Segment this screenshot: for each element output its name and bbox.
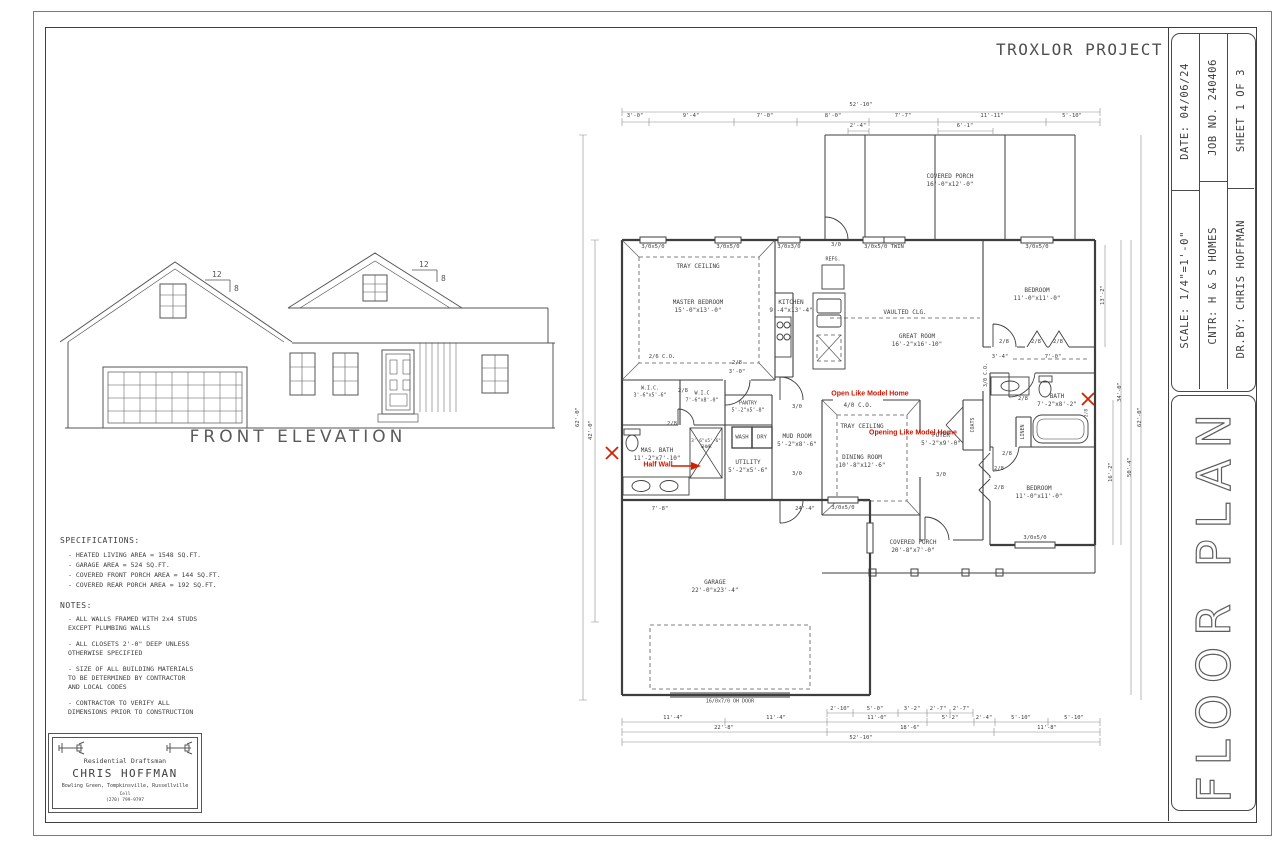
notes-heading: NOTES: [60,601,340,610]
dim-label: 2'-7" [953,706,970,712]
door-label: 2/8 [994,485,1004,491]
dim-label: 2'-4" [850,123,867,129]
door-label: 3/0 [936,472,946,478]
room-label-covered-porch-front: COVERED PORCH20'-8"x7'-0" [890,539,937,555]
tray-corner-lines [622,240,920,515]
svg-text:12: 12 [212,270,222,279]
drawing-title: FLOOR PLAN [1187,403,1241,803]
room-label-covered-porch-rear: COVERED PORCH16'-0"x12'-0" [927,173,974,189]
markup-opening-like-model-home: Opening Like Model Home [869,430,957,437]
door-label: 3/0 [831,242,841,248]
room-label-mud-room: MUD ROOM5'-2"x8'-6" [777,433,817,449]
room-label-bedroom-lower: BEDROOM11'-0"x11'-0" [1016,485,1063,501]
dim-label: 62'-0" [1137,407,1143,427]
door-label: 2/8 [994,466,1004,472]
stamp-phone: (270) 799-9797 [106,798,144,804]
room-label-wic-small: W.I.C.3'-6"x5'-6" [633,385,666,399]
window-label: 3/0x3/0 [777,244,800,250]
door-label: 2/8 [1031,339,1041,345]
dim-label: 7'-0" [1045,354,1062,360]
dim-label: 8'-0" [825,113,842,119]
room-label-bath: BATH7'-2"x8'-2" [1037,393,1077,409]
ceiling-label-master: TRAY CEILING [676,263,719,271]
dim-label: 5'-10" [1011,715,1031,721]
door-label: 2/8 [999,339,1009,345]
room-label-bedroom-upper: BEDROOM11'-0"x11'-0" [1014,287,1061,303]
dim-label: 16'-2" [1108,462,1114,482]
door-label: 2/8 [1002,451,1012,457]
dim-label: 62'-0" [575,407,581,427]
dim-label: 11'-8" [1037,725,1057,731]
window-label: 3/0x5/0 TWIN [864,244,904,250]
drafting-machine-icon [165,740,193,756]
spec-item: - COVERED FRONT PORCH AREA = 144 SQ.FT. [60,570,340,580]
front-elevation-label: FRONT ELEVATION [190,427,407,447]
window-label: 3/0x5/0 [1023,535,1046,541]
stamp-cities: Bowling Green, Tompkinsville, Russellvil… [62,783,188,789]
door-label: 3/0 C.O. [983,363,989,387]
half-wall-arrow [671,462,701,470]
door-label: 2/6 C.O. [649,354,676,360]
dim-label: 11'-4" [766,715,786,721]
dim-label: 22'-8" [714,725,734,731]
dim-label: 3'-4" [992,354,1009,360]
dim-label: 2'-4" [976,715,993,721]
specifications-block: SPECIFICATIONS: - HEATED LIVING AREA = 1… [60,536,340,590]
appliance-label-wash: WASH [735,434,748,441]
door-label: 2/8 [1085,409,1090,417]
room-label-great-room: GREAT ROOM16'-2"x16'-10" [892,333,943,349]
floor-plan: COVERED PORCH16'-0"x12'-0" TRAY CEILING … [575,95,1175,765]
dim-label: 5'-0" [867,706,884,712]
door-label: 3/0 [792,404,802,410]
dim-label: 13'-2" [1100,285,1106,305]
stamp-name: CHRIS HOFFMAN [72,767,178,780]
markup-half-wall: Half Wall [643,462,672,469]
door-label: 2/8 [667,421,677,427]
note-item: - CONTRACTOR TO VERIFY ALL DIMENSIONS PR… [60,699,340,717]
stamp-title: Residential Draftsman [84,757,166,765]
spec-item: - HEATED LIVING AREA = 1548 SQ.FT. [60,550,340,560]
dim-label: 9'-4" [683,113,700,119]
project-title: TROXLOR PROJECT [980,40,1163,59]
date-field: DATE: 04/06/24 [1171,33,1199,190]
svg-text:12: 12 [419,260,429,269]
door-label: 3/0 [792,471,802,477]
room-label-utility: UTILITY5'-2"x5'-6" [728,459,768,475]
note-item: - ALL CLOSETS 2'-0" DEEP UNLESS OTHERWIS… [60,640,340,658]
draftsman-stamp: Residential Draftsman CHRIS HOFFMAN Bowl… [48,733,202,813]
dim-label: 5'-10" [1064,715,1084,721]
room-label-master-bedroom: MASTER BEDROOM15'-0"x13'-0" [673,299,724,315]
notes-block: NOTES: - ALL WALLS FRAMED WITH 2x4 STUDS… [60,601,340,724]
door-label: 2/8 [1018,396,1028,402]
spec-item: - GARAGE AREA = 524 SQ.FT. [60,560,340,570]
dim-label: 2'-7" [930,706,947,712]
contractor-field: CNTR: H & S HOMES [1199,181,1227,390]
drawn-by-field: DR.BY: CHRIS HOFFMAN [1227,188,1254,390]
appliance-label-dry: DRY [757,434,767,441]
appliance-label-refrigerator: REFG. [825,257,840,264]
dim-label: 2'-10" [830,706,850,712]
room-label-kitchen: KITCHEN9'-4"x13'-4" [769,299,812,315]
window-label: 3/0x5/0 [1025,244,1048,250]
drafting-machine-icon [57,740,85,756]
note-item: - SIZE OF ALL BUILDING MATERIALS TO BE D… [60,665,340,692]
room-label-wic-large: W.I.C7'-6"x8'-0" [685,390,718,404]
front-elevation-drawing: 12 8 12 8 [60,220,560,432]
window-label: 3/0x5/0 [831,505,854,511]
drawing-title-box: FLOOR PLAN [1171,395,1256,811]
dim-label: 3'-0" [627,113,644,119]
dim-label: 34'-0" [1117,382,1123,402]
room-label-linen: LINEN [1020,424,1026,439]
dim-label: 11'-11" [980,113,1003,119]
dim-label: 3'-2" [904,706,921,712]
room-label-coats: COATS [970,417,976,432]
room-label-garage: GARAGE22'-0"x23'-4" [692,579,739,595]
dim-label: 5'-10" [1062,113,1082,119]
dim-label: 11'-0" [867,715,887,721]
dim-label: 5'-2" [942,715,959,721]
dim-overall-bottom: 52'-10" [849,735,872,741]
dim-label: 42'-0" [588,420,594,440]
garage-door-label: 16/0x7/0 OH DOOR [706,699,754,706]
specifications-heading: SPECIFICATIONS: [60,536,340,545]
scale-field: SCALE: 1/4"=1'-0" [1171,190,1199,390]
dim-label: 7'-7" [895,113,912,119]
door-label: 2/8 [732,360,742,366]
dim-overall-top: 52'-10" [849,102,872,108]
room-label-shower: 3'-6"x5'-6"SHWR [691,439,721,451]
sheet-number-field: SHEET 1 OF 3 [1227,33,1254,188]
window-label: 3/0x5/0 [716,244,739,250]
dim-label: 18'-6" [900,725,920,731]
door-dim-label: 3'-0" [729,369,746,375]
svg-text:8: 8 [441,274,446,283]
svg-text:8: 8 [234,284,239,293]
dim-label: 7'-8" [652,506,669,512]
dim-label: 50'-4" [1127,457,1133,477]
drawing-sheet: TROXLOR PROJECT DATE: 04/06/24 JOB NO. 2… [0,0,1280,847]
dim-label: 11'-4" [663,715,683,721]
room-label-dining: DINING ROOM10'-8"x12'-6" [839,454,886,470]
dim-label: 24'-4" [795,506,815,512]
door-label: 2/8 [678,388,688,394]
note-item: - ALL WALLS FRAMED WITH 2x4 STUDS EXCEPT… [60,615,340,633]
door-label: 2/8 [1053,339,1063,345]
spec-item: - COVERED REAR PORCH AREA = 192 SQ.FT. [60,580,340,590]
roof-pitch-markers: 12 8 12 8 [212,260,446,293]
ceiling-label-great-room: VAULTED CLG. [883,309,926,317]
dim-label: 7'-0" [757,113,774,119]
job-number-field: JOB NO. 240406 [1199,33,1227,181]
room-label-pantry: PANTRY5'-2"x5'-8" [731,400,764,414]
markup-open-like-model-home: Open Like Model Home [831,391,908,398]
window-label: 3/0x5/0 [641,244,664,250]
dashed-features [639,257,1087,689]
opening-label-dining: 4/0 C.O. [844,402,873,410]
dim-label: 6'-1" [957,123,974,129]
